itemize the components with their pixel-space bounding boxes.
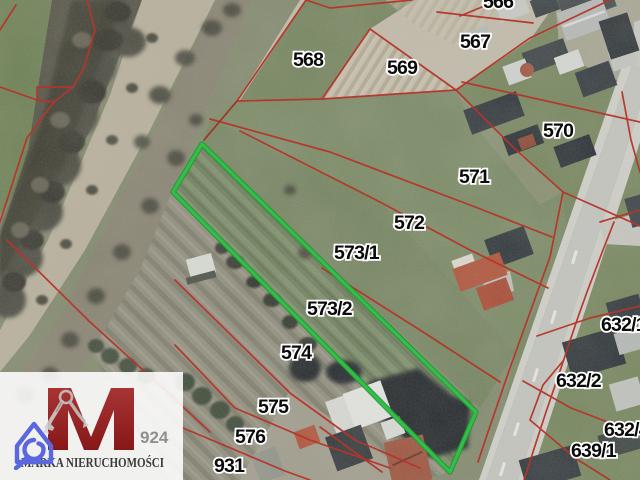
svg-text:571: 571 [459, 166, 490, 188]
svg-text:924: 924 [140, 428, 169, 447]
svg-text:632/1: 632/1 [601, 314, 640, 336]
svg-text:575: 575 [258, 396, 289, 418]
svg-text:573/1: 573/1 [334, 242, 380, 264]
svg-text:931: 931 [214, 455, 245, 477]
svg-text:570: 570 [543, 120, 574, 142]
svg-text:567: 567 [460, 31, 490, 53]
svg-text:639/1: 639/1 [571, 440, 617, 462]
svg-text:566: 566 [483, 0, 514, 13]
svg-text:632/2: 632/2 [556, 370, 602, 392]
svg-text:573/2: 573/2 [307, 298, 353, 320]
svg-text:569: 569 [387, 57, 418, 79]
svg-text:576: 576 [235, 426, 266, 448]
svg-text:574: 574 [281, 342, 312, 364]
svg-text:632/4: 632/4 [604, 419, 640, 441]
svg-text:568: 568 [293, 49, 324, 71]
svg-text:572: 572 [394, 212, 425, 234]
